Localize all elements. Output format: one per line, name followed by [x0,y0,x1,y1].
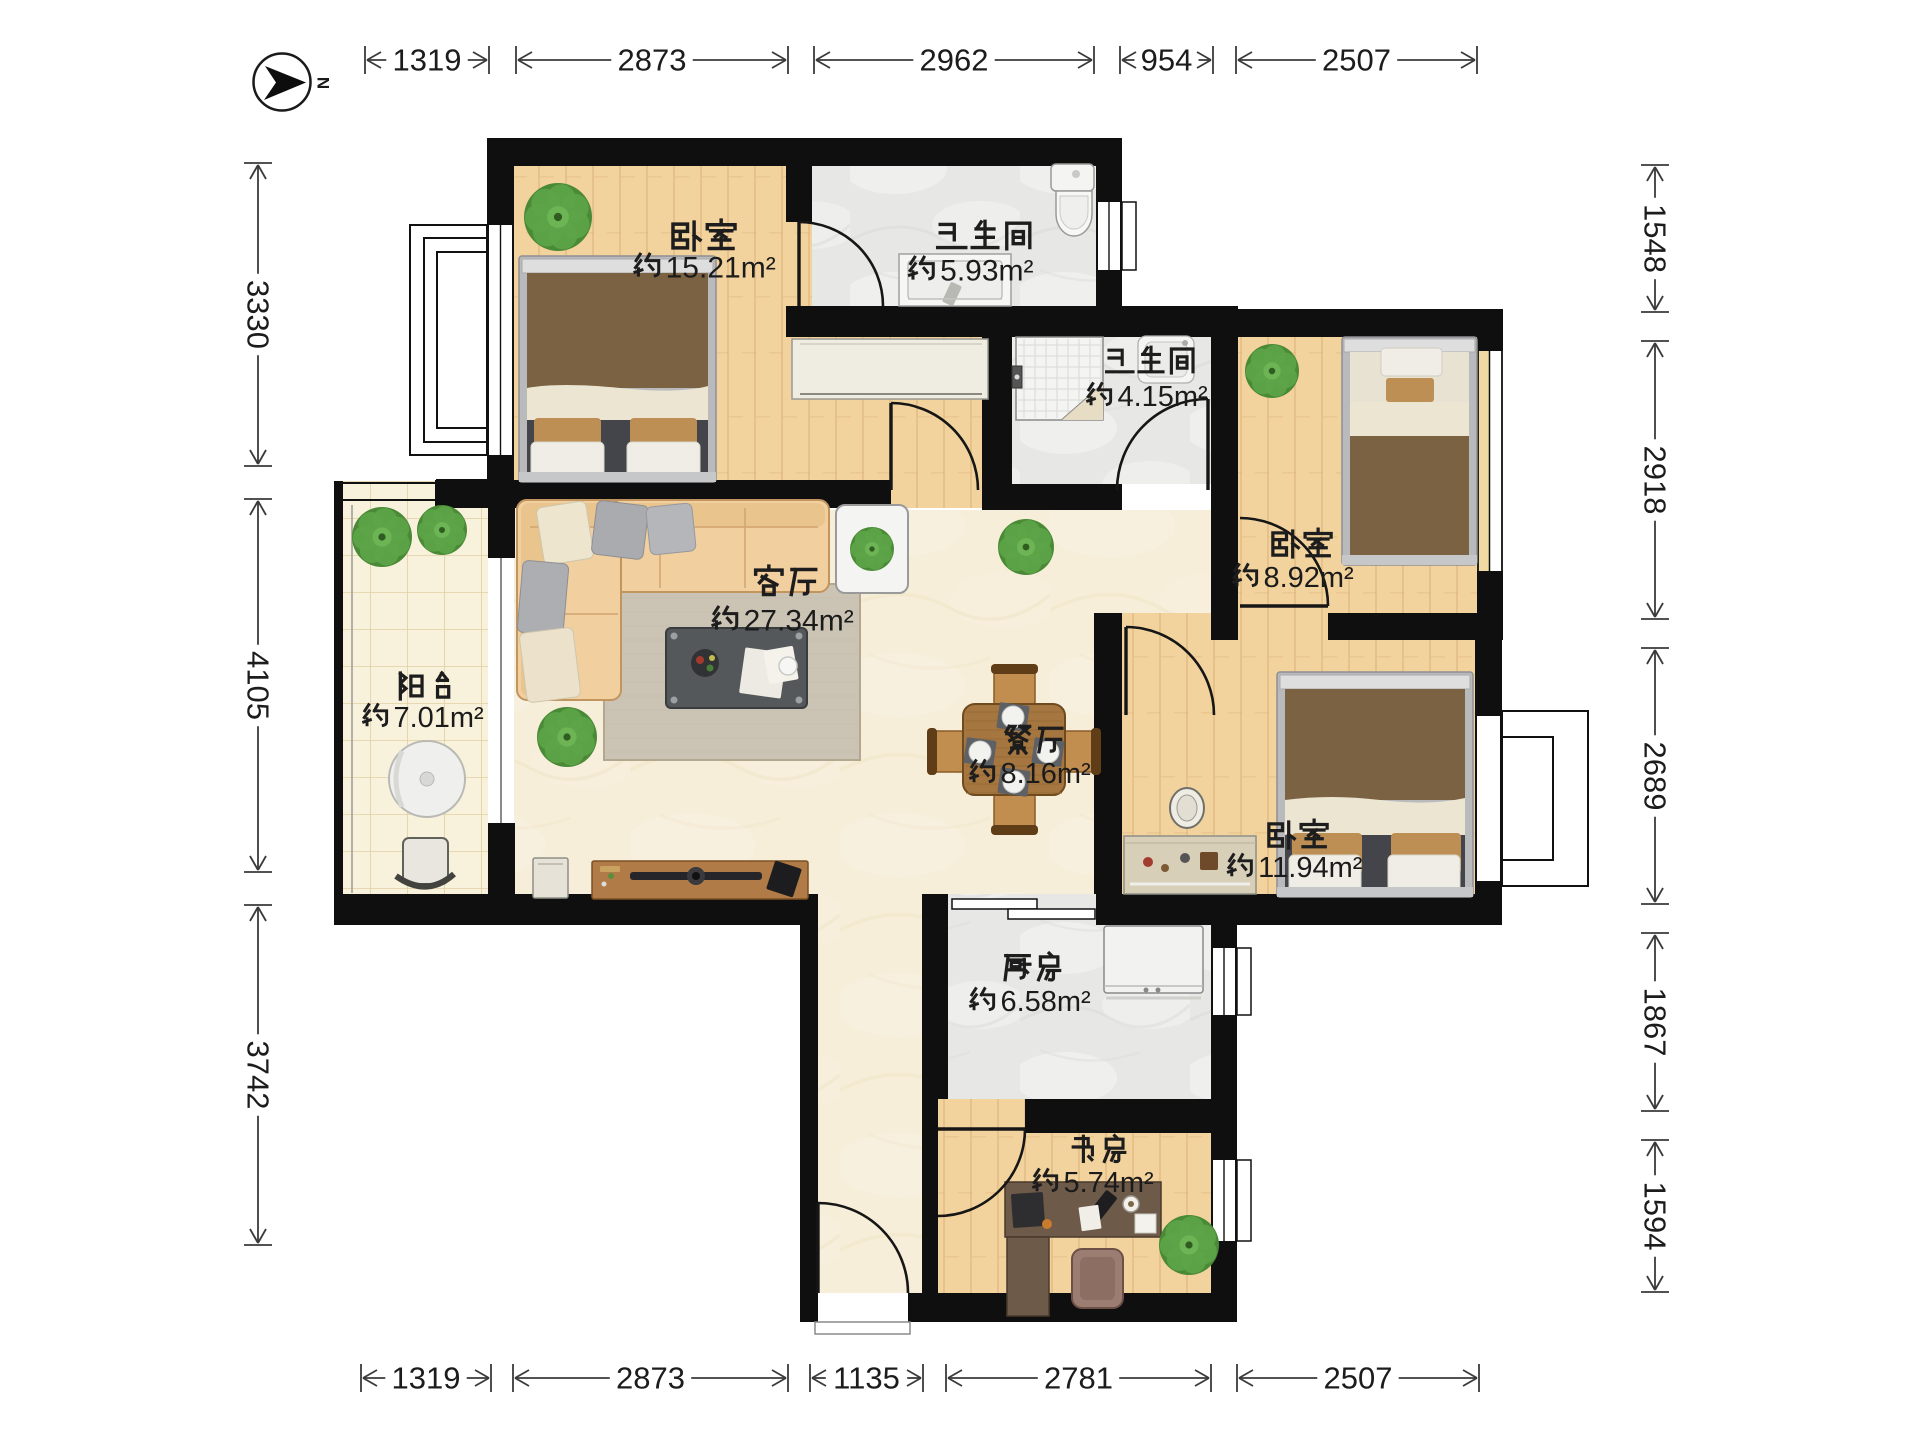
svg-text:954: 954 [1141,43,1193,78]
svg-text:1594: 1594 [1638,1182,1673,1251]
svg-text:2962: 2962 [920,43,989,78]
svg-text:N: N [314,77,333,89]
svg-text:2781: 2781 [1044,1361,1113,1396]
svg-text:4105: 4105 [241,651,276,720]
svg-text:2918: 2918 [1638,446,1673,515]
svg-text:1548: 1548 [1638,204,1673,273]
svg-text:2873: 2873 [616,1361,685,1396]
svg-text:5.93m²: 5.93m² [940,255,1033,288]
svg-text:6.58m²: 6.58m² [1000,986,1091,1018]
svg-text:1319: 1319 [392,1361,461,1396]
svg-text:1135: 1135 [833,1361,900,1396]
svg-text:3330: 3330 [241,280,276,349]
svg-text:15.21m²: 15.21m² [666,252,776,285]
svg-text:1867: 1867 [1638,988,1673,1057]
svg-text:8.92m²: 8.92m² [1263,562,1354,594]
svg-text:11.94m²: 11.94m² [1258,852,1363,884]
svg-text:7.01m²: 7.01m² [393,702,484,734]
svg-text:8.16m²: 8.16m² [1000,758,1091,790]
svg-text:2507: 2507 [1324,1361,1393,1396]
svg-text:2689: 2689 [1638,742,1673,811]
svg-text:1319: 1319 [393,43,462,78]
svg-text:5.74m²: 5.74m² [1063,1167,1154,1199]
svg-text:2873: 2873 [618,43,687,78]
svg-text:27.34m²: 27.34m² [744,605,854,638]
svg-text:4.15m²: 4.15m² [1117,381,1208,413]
svg-text:2507: 2507 [1322,43,1391,78]
svg-text:3742: 3742 [241,1041,276,1110]
